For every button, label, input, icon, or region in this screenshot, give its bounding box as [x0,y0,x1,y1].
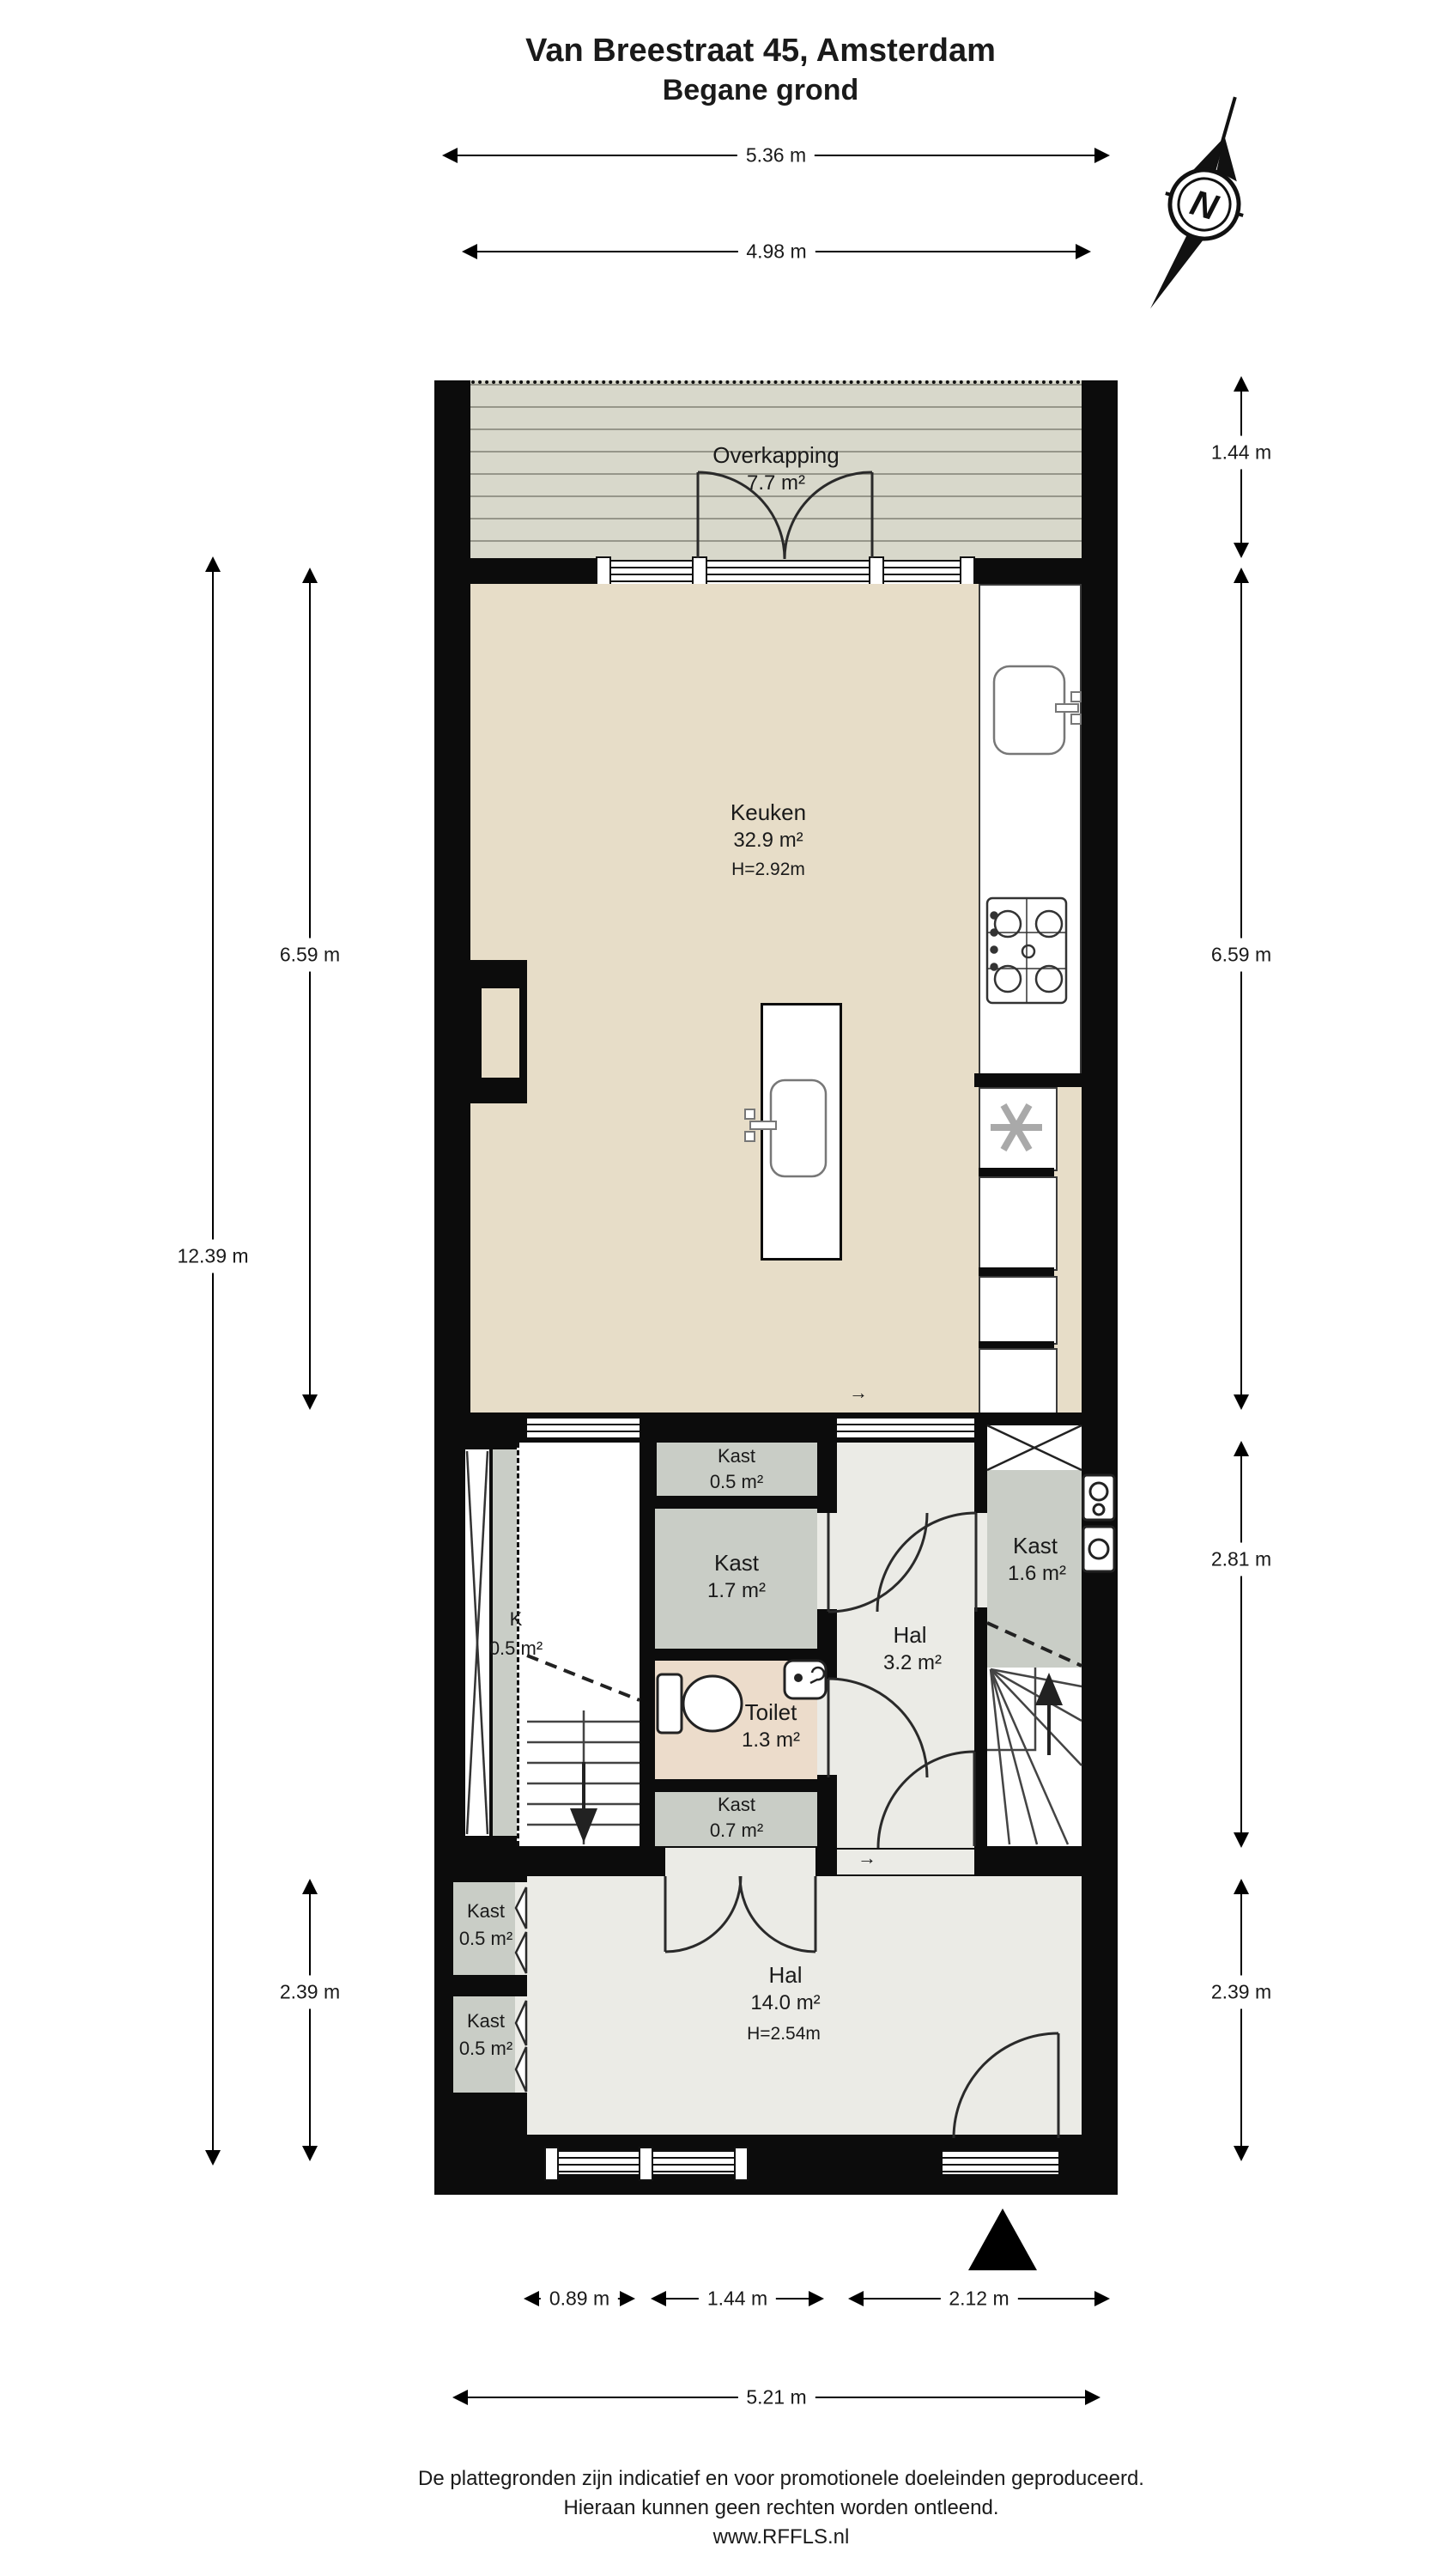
dimension-bottom-kast: 0.89 m [525,2289,634,2308]
dimension-label: 12.39 m [173,1240,252,1273]
counter-sink-icon [994,666,1081,754]
room-label-overkapping: Overkapping [712,441,839,470]
arrowhead-up-icon [1234,1441,1249,1456]
dimension-line [309,1880,311,2160]
dimension-bottom-mid: 1.44 m [652,2289,822,2308]
arrowhead-up-icon [1234,1879,1249,1894]
room-label-kast-hal-a: Kast [467,1899,505,1923]
dimension-label: 2.81 m [1208,1543,1275,1577]
room-area-toilet: 1.3 m² [742,1728,800,1753]
room-area-overkapping: 7.7 m² [747,471,805,496]
room-area-kast-hal-b: 0.5 m² [459,2037,512,2061]
double-door-kast-bottom [665,1876,815,1952]
arrowhead-down-icon [1234,1832,1249,1848]
dimension-label: 6.59 m [1208,939,1275,972]
arrowhead-up-icon [1234,376,1249,392]
dimension-left-hal: 2.39 m [300,1880,319,2160]
toilet-icon [658,1674,742,1733]
footer-disclaimer-line1: De plattegronden zijn indicatief en voor… [418,2466,1144,2492]
arrowhead-left-icon [524,2291,539,2306]
dimension-label: 6.59 m [276,939,343,972]
dimension-label: 2.39 m [276,1976,343,2009]
dimension-label: 2.12 m [940,2287,1017,2312]
room-label-toilet: Toilet [745,1698,797,1727]
stove-icon [987,898,1066,1003]
room-label-kast-hal-b: Kast [467,2009,505,2033]
stairs-headroom-line [987,1623,1082,1666]
arrowhead-down-icon [302,1394,318,1410]
arrowhead-right-icon [620,2291,635,2306]
footer-disclaimer-line2: Hieraan kunnen geen rechten worden ontle… [563,2495,998,2521]
arrowhead-up-icon [205,556,221,572]
dimension-left-total: 12.39 m [203,558,222,2164]
dimension-right-hal: 2.39 m [1232,1880,1251,2160]
dimension-line [1240,1443,1242,1846]
dimension-label: 5.21 m [737,2385,815,2410]
door-toilet [828,1679,927,1777]
floorplan-page: Van Breestraat 45, Amsterdam Begane gron… [0,0,1449,2576]
arrowhead-up-icon [302,1879,318,1894]
dimension-line [212,558,214,2164]
dimension-label: 2.39 m [1208,1976,1275,2009]
arrowhead-right-icon [1094,2291,1110,2306]
arrowhead-down-icon [1234,2146,1249,2161]
arrowhead-right-icon [809,2291,824,2306]
meter-panel-icons [1083,1475,1114,1571]
room-label-kast-left: K [510,1607,523,1631]
arrowhead-down-icon [205,2150,221,2166]
dimension-line [1240,1880,1242,2160]
arrowhead-right-icon [1085,2390,1100,2405]
stairs-up-arrow-icon [1035,1673,1063,1755]
dimension-right-overkapping: 1.44 m [1232,378,1251,556]
arrowhead-down-icon [1234,543,1249,558]
dimension-label: 1.44 m [1208,436,1275,470]
void-x-icon [467,1451,488,1834]
bifold-door-icons [516,1887,526,2092]
stairs-up [987,1668,1082,1844]
stairs-down-arrow-icon [570,1762,597,1843]
arrowhead-left-icon [452,2390,468,2405]
arrowhead-left-icon [848,2291,864,2306]
island-sink-icon [745,1080,826,1176]
arrowhead-down-icon [1234,1394,1249,1410]
vent-icon [991,1105,1042,1150]
dimension-label: 1.44 m [699,2287,776,2312]
dimension-bottom-entry: 2.12 m [850,2289,1108,2308]
arrowhead-up-icon [1234,568,1249,583]
footer-website: www.RFFLS.nl [713,2524,850,2550]
front-door [954,2033,1058,2138]
shaft-x-icon [987,1425,1082,1470]
dimension-label: 0.89 m [541,2287,618,2312]
dimension-line [1240,569,1242,1408]
dimension-bottom-total: 5.21 m [454,2388,1099,2407]
dimension-right-mid: 2.81 m [1232,1443,1251,1846]
arrowhead-left-icon [651,2291,666,2306]
arrowhead-down-icon [302,2146,318,2161]
room-area-kast-hal-a: 0.5 m² [459,1927,512,1951]
room-area-kast-left: 0.5 m² [489,1637,543,1661]
dimension-left-keuken: 6.59 m [300,569,319,1408]
arrowhead-up-icon [302,568,318,583]
dimension-right-keuken: 6.59 m [1232,569,1251,1408]
toilet-sink-icon [785,1661,826,1698]
dimension-line [309,569,311,1408]
